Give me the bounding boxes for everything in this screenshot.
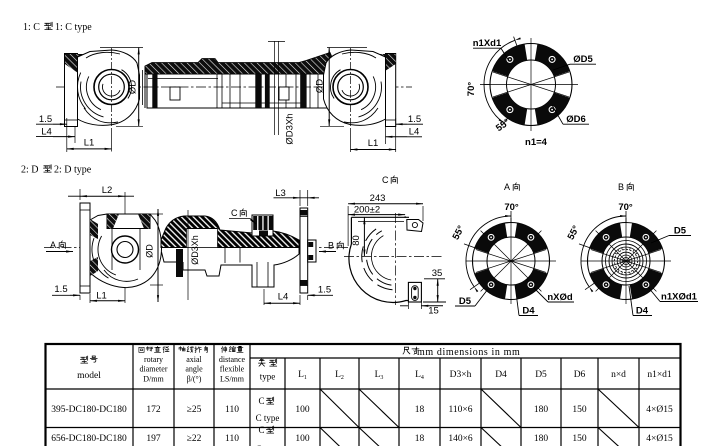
- svg-text:ØD3Xh: ØD3Xh: [190, 235, 200, 265]
- svg-text:n1XØd1: n1XØd1: [661, 292, 698, 303]
- svg-text:1.5: 1.5: [39, 114, 52, 125]
- svg-text:L1: L1: [84, 138, 95, 149]
- svg-text:≥22: ≥22: [187, 434, 202, 444]
- svg-text:15: 15: [428, 306, 439, 317]
- svg-text:1: C type: 1: C type: [55, 22, 92, 33]
- svg-text:A: A: [504, 182, 510, 192]
- svg-text:distance: distance: [219, 355, 246, 364]
- svg-text:4×Ø15: 4×Ø15: [646, 405, 673, 415]
- svg-text:L4: L4: [41, 127, 52, 138]
- svg-text:n1Xd1: n1Xd1: [473, 38, 502, 49]
- svg-text:D4: D4: [495, 370, 507, 380]
- svg-text:L3: L3: [275, 188, 286, 199]
- svg-text:C: C: [231, 208, 238, 218]
- svg-text:type: type: [260, 372, 276, 382]
- svg-text:axial: axial: [186, 355, 202, 364]
- svg-text:B: B: [328, 241, 334, 251]
- svg-text:70°: 70°: [466, 82, 477, 97]
- svg-text:D6: D6: [574, 370, 586, 380]
- svg-text:1.5: 1.5: [318, 285, 331, 296]
- svg-text:LS/mm: LS/mm: [220, 375, 245, 384]
- svg-text:110: 110: [225, 405, 239, 415]
- svg-text:L1: L1: [368, 138, 379, 149]
- svg-text:243: 243: [370, 193, 386, 204]
- svg-text:172: 172: [146, 405, 161, 415]
- svg-text:β/(°): β/(°): [187, 375, 202, 384]
- svg-text:≥25: ≥25: [187, 405, 202, 415]
- svg-text:D5: D5: [459, 296, 472, 307]
- svg-text:n×d: n×d: [611, 370, 626, 380]
- svg-text:1.5: 1.5: [54, 284, 67, 295]
- svg-text:D5: D5: [535, 370, 547, 380]
- svg-text:flexible: flexible: [220, 365, 245, 374]
- svg-text:80: 80: [351, 235, 362, 246]
- svg-text:nXØd: nXØd: [547, 292, 573, 303]
- svg-text:ØD: ØD: [315, 79, 326, 93]
- svg-text:110: 110: [225, 434, 239, 444]
- svg-text:2: D type: 2: D type: [54, 165, 92, 176]
- svg-text:A: A: [50, 240, 56, 250]
- svg-text:L1: L1: [96, 291, 107, 302]
- svg-text:C type: C type: [256, 413, 280, 423]
- svg-text:1: C: 1: C: [23, 22, 40, 33]
- svg-text:100: 100: [295, 405, 310, 415]
- svg-text:D4: D4: [636, 306, 649, 317]
- svg-text:18: 18: [415, 405, 425, 415]
- svg-text:ØD6: ØD6: [566, 114, 586, 125]
- svg-text:180: 180: [534, 434, 549, 444]
- svg-text:395-DC180-DC180: 395-DC180-DC180: [51, 405, 127, 415]
- svg-text:D/mm: D/mm: [143, 375, 164, 384]
- svg-text:ØD: ØD: [128, 80, 139, 94]
- svg-text:L4: L4: [409, 127, 420, 138]
- svg-text:18: 18: [415, 434, 425, 444]
- svg-text:35: 35: [432, 268, 443, 279]
- svg-text:ØD3Xh: ØD3Xh: [285, 113, 296, 144]
- svg-text:C: C: [258, 396, 264, 406]
- svg-text:ØD: ØD: [145, 244, 155, 258]
- svg-text:140×6: 140×6: [448, 434, 473, 444]
- svg-text:180: 180: [534, 405, 549, 415]
- svg-text:D5: D5: [674, 226, 687, 237]
- svg-text:150: 150: [572, 434, 587, 444]
- svg-text:D3×h: D3×h: [450, 370, 472, 380]
- svg-text:150: 150: [572, 405, 587, 415]
- svg-text:/mm dimensions in mm: /mm dimensions in mm: [414, 347, 521, 358]
- svg-text:L2: L2: [102, 185, 113, 196]
- svg-text:ØD5: ØD5: [573, 54, 593, 65]
- svg-text:70°: 70°: [504, 202, 519, 213]
- svg-text:L4: L4: [278, 292, 289, 303]
- svg-text:4×Ø15: 4×Ø15: [646, 434, 673, 444]
- svg-text:B: B: [618, 182, 624, 192]
- svg-text:rotary: rotary: [144, 355, 163, 364]
- svg-text:C: C: [382, 175, 389, 185]
- svg-text:110×6: 110×6: [448, 405, 472, 415]
- svg-text:C: C: [258, 425, 264, 435]
- svg-text:n1×d1: n1×d1: [647, 370, 672, 380]
- svg-text:70°: 70°: [618, 202, 633, 213]
- svg-text:D4: D4: [522, 306, 535, 317]
- svg-text:model: model: [77, 371, 101, 381]
- svg-text:200±2: 200±2: [354, 205, 380, 216]
- svg-text:197: 197: [146, 434, 161, 444]
- svg-text:656-DC180-DC180: 656-DC180-DC180: [51, 434, 127, 444]
- svg-text:angle: angle: [185, 365, 203, 374]
- svg-text:1.5: 1.5: [408, 114, 421, 125]
- svg-text:diameter: diameter: [140, 365, 168, 374]
- svg-text:2: D: 2: D: [21, 165, 39, 176]
- svg-text:n1=4: n1=4: [525, 137, 548, 148]
- svg-text:100: 100: [295, 434, 310, 444]
